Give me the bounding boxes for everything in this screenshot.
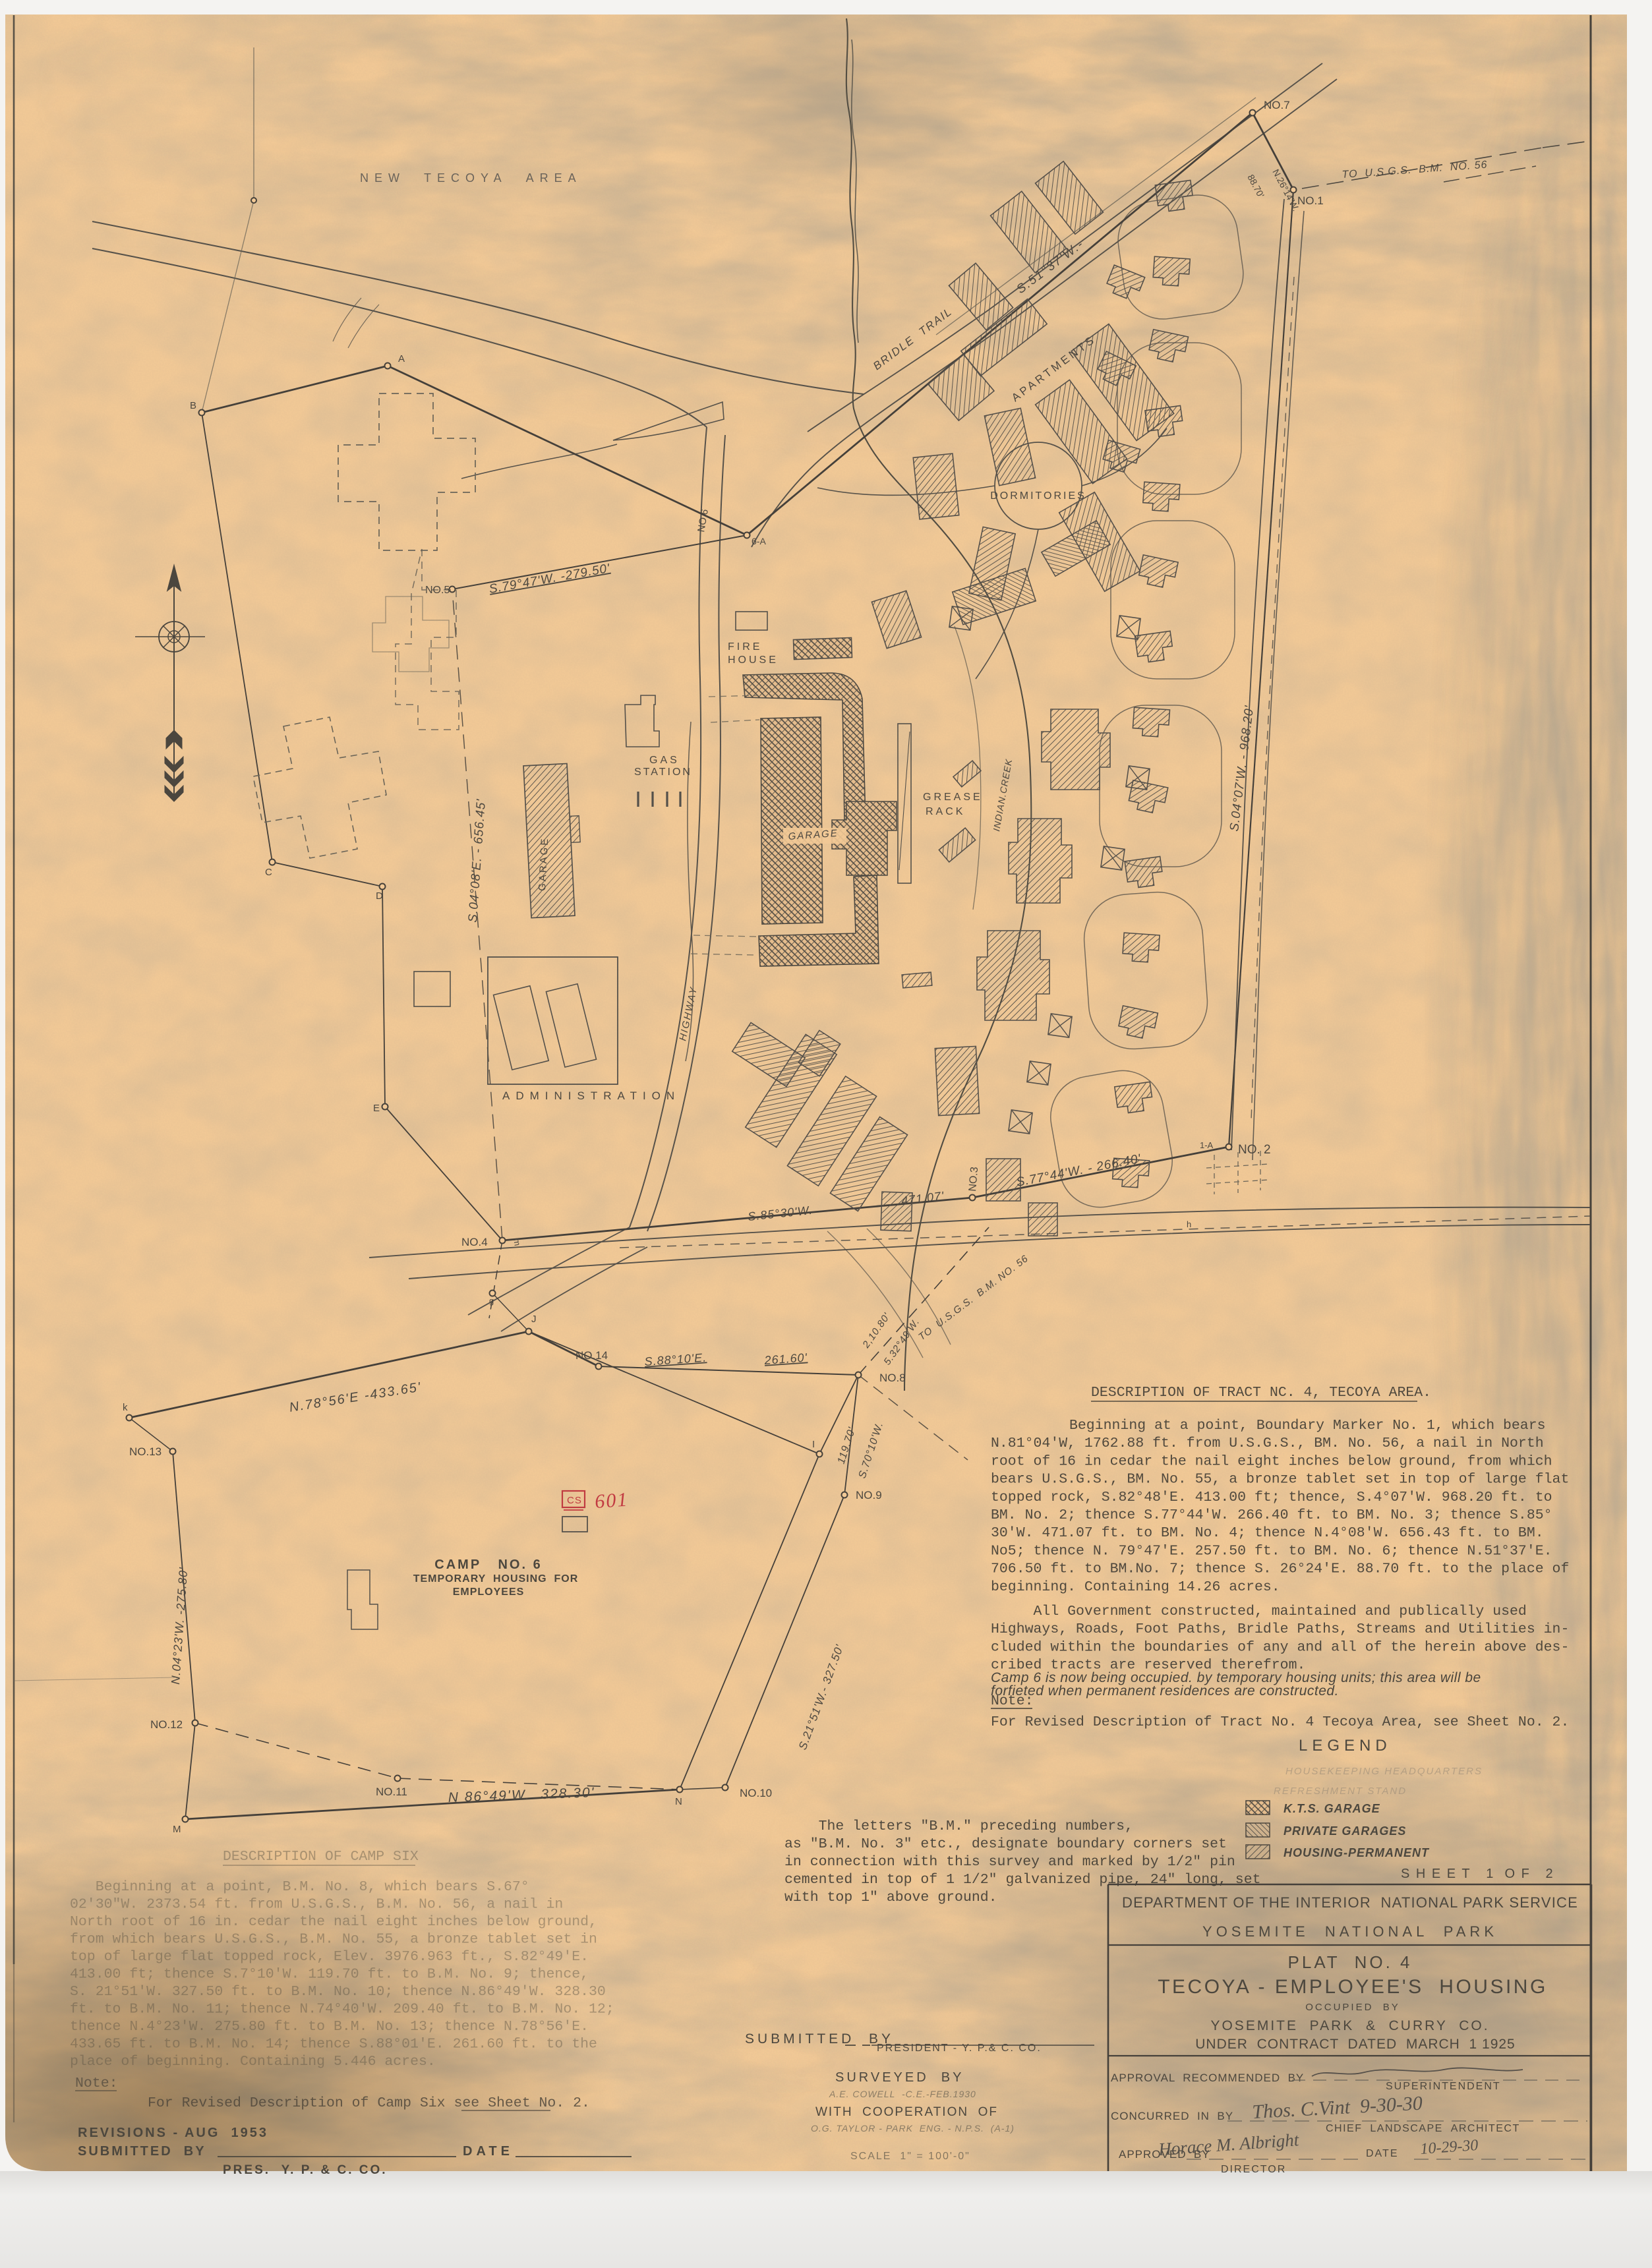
svg-text:CAMP NO. 6: CAMP NO. 6 [434, 1557, 542, 1572]
svg-text:NO. 2: NO. 2 [1238, 1143, 1271, 1157]
svg-text:HOUSE: HOUSE [728, 654, 779, 666]
svg-text:S H E E T 1 O F 2: S H E E T 1 O F 2 [1401, 1867, 1554, 1881]
svg-text:6-A: 6-A [752, 536, 766, 546]
svg-text:SURVEYED BY: SURVEYED BY [835, 2070, 964, 2085]
svg-text:CS: CS [567, 1495, 582, 1506]
svg-text:PRES. Y. P. & C. CO.: PRES. Y. P. & C. CO. [223, 2163, 388, 2177]
svg-text:from which bears U.S.G.S., B.M: from which bears U.S.G.S., B.M. No. 55, … [70, 1932, 597, 1948]
svg-text:g: g [489, 1296, 494, 1306]
svg-text:root of 16 in cedar the nail e: root of 16 in cedar the nail eight inche… [991, 1453, 1552, 1469]
svg-text:CHIEF LANDSCAPE ARCHITECT: CHIEF LANDSCAPE ARCHITECT [1326, 2123, 1520, 2134]
svg-text:GREASE: GREASE [923, 792, 983, 803]
svg-text:SCALE 1" = 100'-0": SCALE 1" = 100'-0" [850, 2151, 970, 2162]
svg-text:NO.13: NO.13 [129, 1445, 162, 1458]
svg-text:NO.12: NO.12 [150, 1718, 183, 1731]
svg-text:706.50 ft. to BM.No. 7; thence: 706.50 ft. to BM.No. 7; thence S. 26°24'… [991, 1561, 1569, 1577]
svg-text:PRESIDENT - Y. P.& C. CO.: PRESIDENT - Y. P.& C. CO. [877, 2043, 1042, 2054]
svg-text:M: M [173, 1824, 181, 1835]
svg-text:DESCRIPTION OF CAMP SIX: DESCRIPTION OF CAMP SIX [223, 1849, 419, 1865]
svg-text:DATE: DATE [463, 2144, 514, 2159]
svg-text:PRIVATE GARAGES: PRIVATE GARAGES [1283, 1824, 1406, 1838]
svg-text:Note:: Note: [991, 1693, 1034, 1709]
svg-text:E: E [373, 1103, 380, 1114]
svg-text:SUPERINTENDENT: SUPERINTENDENT [1386, 2081, 1501, 2092]
svg-text:with top 1" above ground.: with top 1" above ground. [784, 1890, 997, 1905]
svg-text:NO.1: NO.1 [1297, 194, 1324, 207]
svg-text:NO.14: NO.14 [575, 1349, 608, 1362]
svg-text:No5; thence N. 79°47'E. 257.50: No5; thence N. 79°47'E. 257.50 ft. to BM… [991, 1543, 1552, 1559]
svg-text:DIRECTOR: DIRECTOR [1221, 2164, 1286, 2175]
svg-text:UNDER CONTRACT DATED MARCH: UNDER CONTRACT DATED MARCH 1 1925 [1195, 2037, 1515, 2052]
svg-text:02'30"W. 2373.54 ft. from U.S.: 02'30"W. 2373.54 ft. from U.S.G.S., B.M.… [70, 1897, 563, 1913]
svg-text:For Revised Description of Tra: For Revised Description of Tract No. 4 T… [991, 1714, 1569, 1730]
svg-text:A.E. COWELL -C.E.-FEB.1930: A.E. COWELL -C.E.-FEB.1930 [829, 2089, 976, 2099]
svg-text:k: k [123, 1402, 128, 1413]
svg-text:NO.4: NO.4 [461, 1236, 488, 1248]
svg-text:S. 21°51'W. 327.50 ft. to B.M.: S. 21°51'W. 327.50 ft. to B.M. No. 10; t… [70, 1984, 606, 2000]
svg-text:North root of 16 in. cedar the: North root of 16 in. cedar the nail eigh… [70, 1914, 597, 1930]
svg-text:OCCUPIED BY: OCCUPIED BY [1305, 2002, 1400, 2013]
svg-text:thence N.4°23'W. 275.80 ft. to: thence N.4°23'W. 275.80 ft. to B.M. No. … [70, 2019, 589, 2035]
svg-text:YOSEMITE PARK & CURRY CO.: YOSEMITE PARK & CURRY CO. [1210, 2018, 1489, 2033]
svg-text:NO.9: NO.9 [856, 1489, 882, 1501]
svg-text:WITH COOPERATION OF: WITH COOPERATION OF [815, 2105, 998, 2119]
svg-text:NO.7: NO.7 [1264, 99, 1290, 111]
svg-text:30'W. 471.07 ft. to BM. No. 4;: 30'W. 471.07 ft. to BM. No. 4; thence N.… [991, 1525, 1544, 1541]
svg-text:NO.10: NO.10 [740, 1787, 772, 1799]
svg-text:topped rock, S.82°48'E. 413.00: topped rock, S.82°48'E. 413.00 ft; thenc… [991, 1490, 1552, 1505]
svg-text:DATE: DATE [1366, 2148, 1398, 2159]
svg-text:Beginning at a point, Boundary: Beginning at a point, Boundary Marker No… [1069, 1418, 1546, 1434]
svg-text:For Revised Description of Cam: For Revised Description of Camp Six see … [148, 2095, 590, 2111]
svg-text:B: B [190, 400, 196, 411]
svg-text:N.81°04'W, 1762.88 ft. from U.: N.81°04'W, 1762.88 ft. from U.S.G.S., BM… [991, 1436, 1544, 1451]
svg-text:beginning. Containing 14.26 a: beginning. Containing 14.26 acres. [991, 1579, 1280, 1595]
svg-text:HOUSEKEEPING HEADQUARTERS: HOUSEKEEPING HEADQUARTERS [1285, 1766, 1483, 1777]
svg-text:BM. No. 2; thence S.77°44'W. 2: BM. No. 2; thence S.77°44'W. 266.40 ft. … [991, 1507, 1552, 1523]
svg-text:NO.5: NO.5 [425, 585, 450, 596]
svg-text:413.00 ft; thence S.7°10'W. 11: 413.00 ft; thence S.7°10'W. 119.70 ft. t… [70, 1967, 589, 1983]
svg-text:LEGEND: LEGEND [1299, 1737, 1392, 1755]
svg-text:O.G. TAYLOR - PARK ENG. - N.P: O.G. TAYLOR - PARK ENG. - N.P.S. (A-1) [811, 2123, 1015, 2134]
svg-text:RACK: RACK [926, 806, 965, 817]
svg-text:as "B.M. No. 3" etc., designat: as "B.M. No. 3" etc., designate boundary… [784, 1836, 1227, 1852]
svg-text:APPROVAL RECOMMENDED BY: APPROVAL RECOMMENDED BY [1111, 2072, 1304, 2084]
svg-text:A: A [398, 353, 405, 364]
svg-text:REVISIONS - AUG 1953: REVISIONS - AUG 1953 [78, 2126, 268, 2140]
svg-text:TEMPORARY HOUSING FOR: TEMPORARY HOUSING FOR [413, 1573, 579, 1585]
svg-text:All Government constructed, ma: All Government constructed, maintained a… [991, 1604, 1527, 1619]
svg-text:DORMITORIES: DORMITORIES [990, 490, 1086, 502]
svg-text:J: J [531, 1314, 537, 1325]
svg-text:C: C [265, 867, 272, 878]
svg-text:N: N [675, 1796, 682, 1807]
svg-text:HOUSING-PERMANENT: HOUSING-PERMANENT [1283, 1846, 1430, 1859]
svg-text:433.65 ft. to B.M. No. 14; the: 433.65 ft. to B.M. No. 14; thence S.88°0… [70, 2037, 597, 2052]
svg-text:EMPLOYEES: EMPLOYEES [453, 1586, 525, 1598]
svg-text:ADMINISTRATION: ADMINISTRATION [502, 1090, 680, 1102]
svg-text:in connection with this survey: in connection with this survey and marke… [784, 1854, 1235, 1870]
svg-text:1-A: 1-A [1200, 1140, 1214, 1150]
svg-text:TECOYA - EMPLOYEE'S HOUSING: TECOYA - EMPLOYEE'S HOUSING [1158, 1976, 1548, 1998]
svg-text:ft. to B.M. No. 11; thence N.7: ft. to B.M. No. 11; thence N.74°40'W. 20… [70, 2002, 614, 2018]
svg-text:DESCRIPTION OF TRACT NC. 4, TE: DESCRIPTION OF TRACT NC. 4, TECOYA AREA. [1091, 1385, 1431, 1401]
svg-text:Note:: Note: [75, 2076, 118, 2091]
svg-text:cluded within the boundaries o: cluded within the boundaries of any and … [991, 1639, 1569, 1655]
svg-text:NEW TECOYA AREA: NEW TECOYA AREA [360, 171, 582, 185]
svg-text:STATION: STATION [634, 767, 692, 778]
svg-text:GAS: GAS [649, 755, 680, 766]
svg-text:The letters "B.M." preceding n: The letters "B.M." preceding numbers, [784, 1818, 1133, 1834]
svg-text:SUBMITTED BY: SUBMITTED BY [78, 2144, 206, 2159]
svg-text:place of beginning. Containin: place of beginning. Containing 5.446 acr… [70, 2054, 436, 2070]
svg-text:SUBMITTED BY: SUBMITTED BY [745, 2031, 894, 2047]
svg-text:DEPARTMENT OF THE INTERIOR NA: DEPARTMENT OF THE INTERIOR NATIONAL PARK… [1122, 1894, 1578, 1911]
svg-text:REFRESHMENT STAND: REFRESHMENT STAND [1274, 1786, 1407, 1797]
svg-text:YOSEMITE NATIONAL PARK: YOSEMITE NATIONAL PARK [1202, 1923, 1498, 1940]
svg-text:top of large flat topped rock,: top of large flat topped rock, Elev. 397… [70, 1949, 589, 1965]
svg-text:I: I [812, 1439, 815, 1450]
svg-text:FIRE: FIRE [728, 641, 762, 653]
svg-text:Highways, Roads, Foot Paths, B: Highways, Roads, Foot Paths, Bridle Path… [991, 1621, 1569, 1637]
svg-text:PLAT NO. 4: PLAT NO. 4 [1288, 1952, 1413, 1972]
svg-text:cemented in top of 1 1/2" galv: cemented in top of 1 1/2" galvanized pip… [784, 1872, 1261, 1888]
svg-text:NO.3: NO.3 [967, 1167, 980, 1192]
svg-text:K.T.S. GARAGE: K.T.S. GARAGE [1283, 1802, 1380, 1815]
svg-text:CONCURRED IN BY: CONCURRED IN BY [1111, 2110, 1233, 2122]
svg-text:h: h [1187, 1219, 1191, 1229]
svg-text:NO.8: NO.8 [879, 1372, 906, 1384]
svg-text:D: D [376, 890, 383, 902]
svg-text:bears U.S.G.S., BM. No. 55, a: bears U.S.G.S., BM. No. 55, a bronze tab… [991, 1472, 1569, 1488]
svg-text:NO.11: NO.11 [376, 1786, 407, 1798]
svg-text:Beginning at a point, B.M. No.: Beginning at a point, B.M. No. 8, which … [70, 1879, 529, 1895]
svg-text:forfieted when permanent resid: forfieted when permanent residences are … [991, 1683, 1339, 1699]
svg-text:601: 601 [594, 1489, 629, 1513]
